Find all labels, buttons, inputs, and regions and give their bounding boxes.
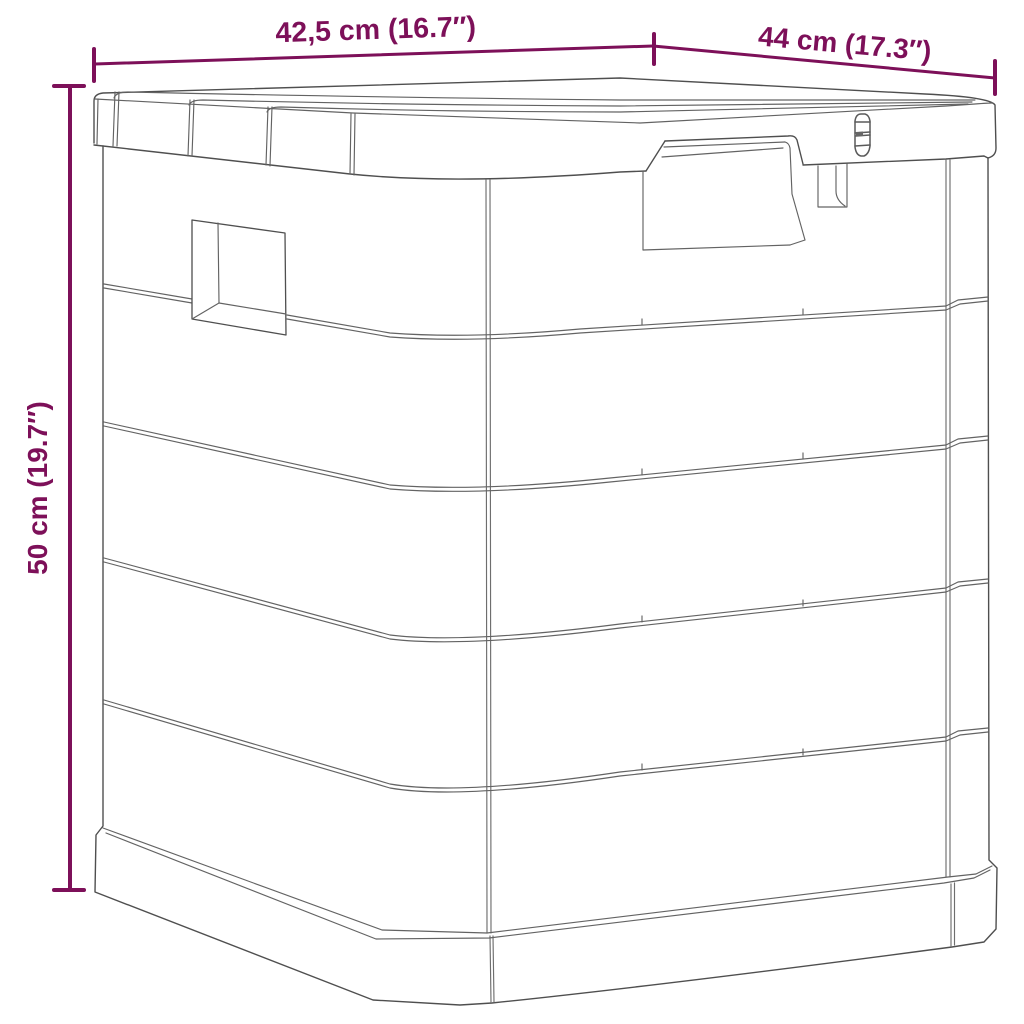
svg-text:42,5 cm (16.7″): 42,5 cm (16.7″): [275, 11, 477, 49]
svg-text:44 cm (17.3″): 44 cm (17.3″): [757, 20, 933, 66]
svg-text:50 cm (19.7″): 50 cm (19.7″): [22, 401, 53, 575]
